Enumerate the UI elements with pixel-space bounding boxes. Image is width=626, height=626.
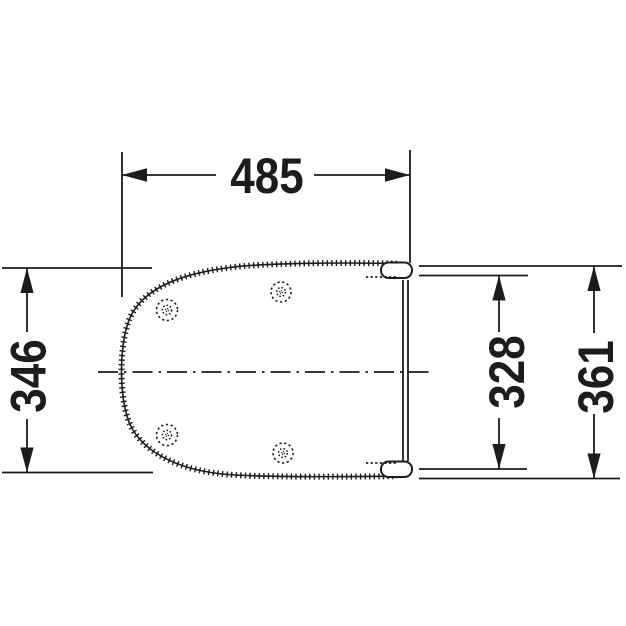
arrowhead-down-icon	[492, 444, 505, 469]
technical-drawing: 485 346 328 361	[0, 0, 626, 626]
arrowhead-up-icon	[492, 276, 505, 301]
dimension-label-left-height: 346	[0, 339, 56, 412]
dimension-label-inner-right-height: 328	[478, 335, 534, 408]
bumper-pad-bottom-center	[273, 443, 293, 463]
arrowhead-right-icon	[385, 168, 410, 182]
arrowhead-up-icon	[20, 268, 33, 293]
bumper-pad-top-center	[271, 282, 291, 302]
dimension-label-outer-right-height: 361	[567, 340, 623, 413]
arrowhead-left-icon	[122, 168, 147, 182]
bumper-pad-top-left	[157, 300, 178, 321]
arrowhead-down-icon	[20, 448, 33, 473]
seat-outline	[122, 263, 409, 477]
drawing-canvas: 485 346 328 361	[0, 0, 626, 626]
hinge-cap-top	[381, 263, 412, 279]
dimension-label-overall-width: 485	[230, 147, 303, 203]
hinge-caps	[366, 263, 412, 478]
arrowhead-down-icon	[587, 454, 600, 479]
arrowhead-up-icon	[587, 266, 600, 291]
bumper-pad-bottom-left	[157, 425, 178, 446]
